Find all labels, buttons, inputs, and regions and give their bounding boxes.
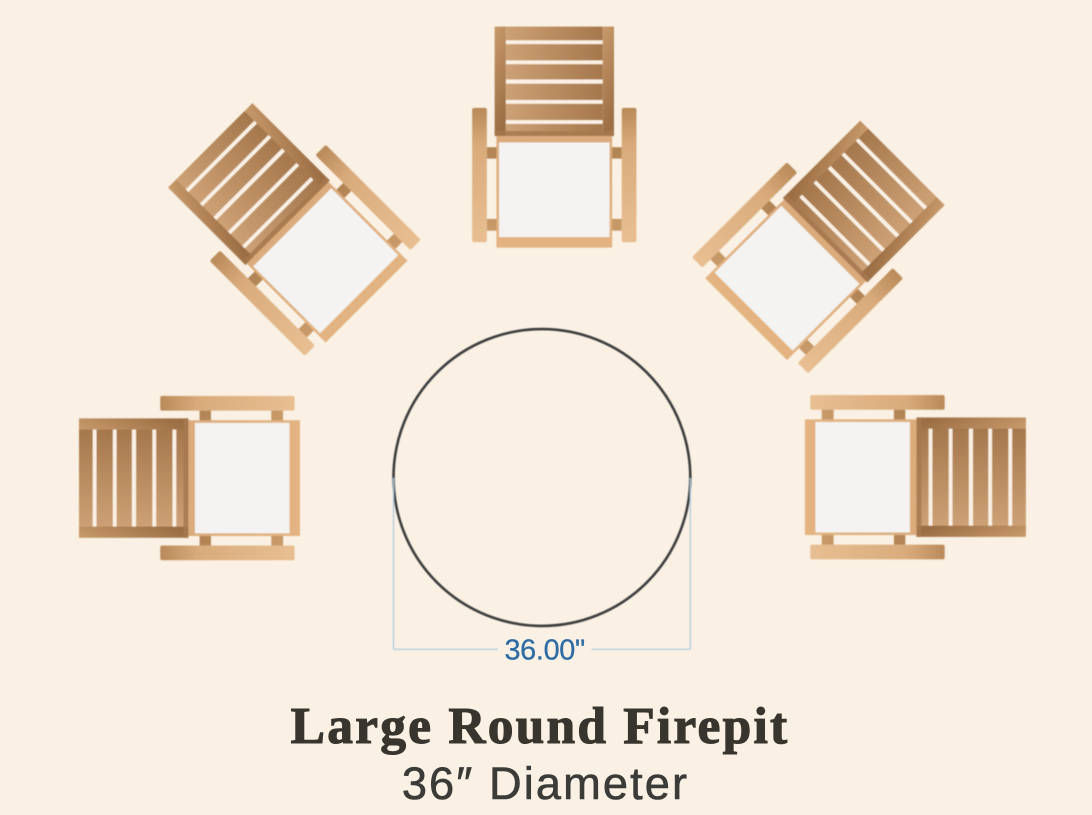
svg-text:Large Round Firepit: Large Round Firepit: [291, 698, 790, 755]
svg-text:36″ Diameter: 36″ Diameter: [402, 758, 689, 809]
svg-text:36.00": 36.00": [504, 635, 585, 667]
